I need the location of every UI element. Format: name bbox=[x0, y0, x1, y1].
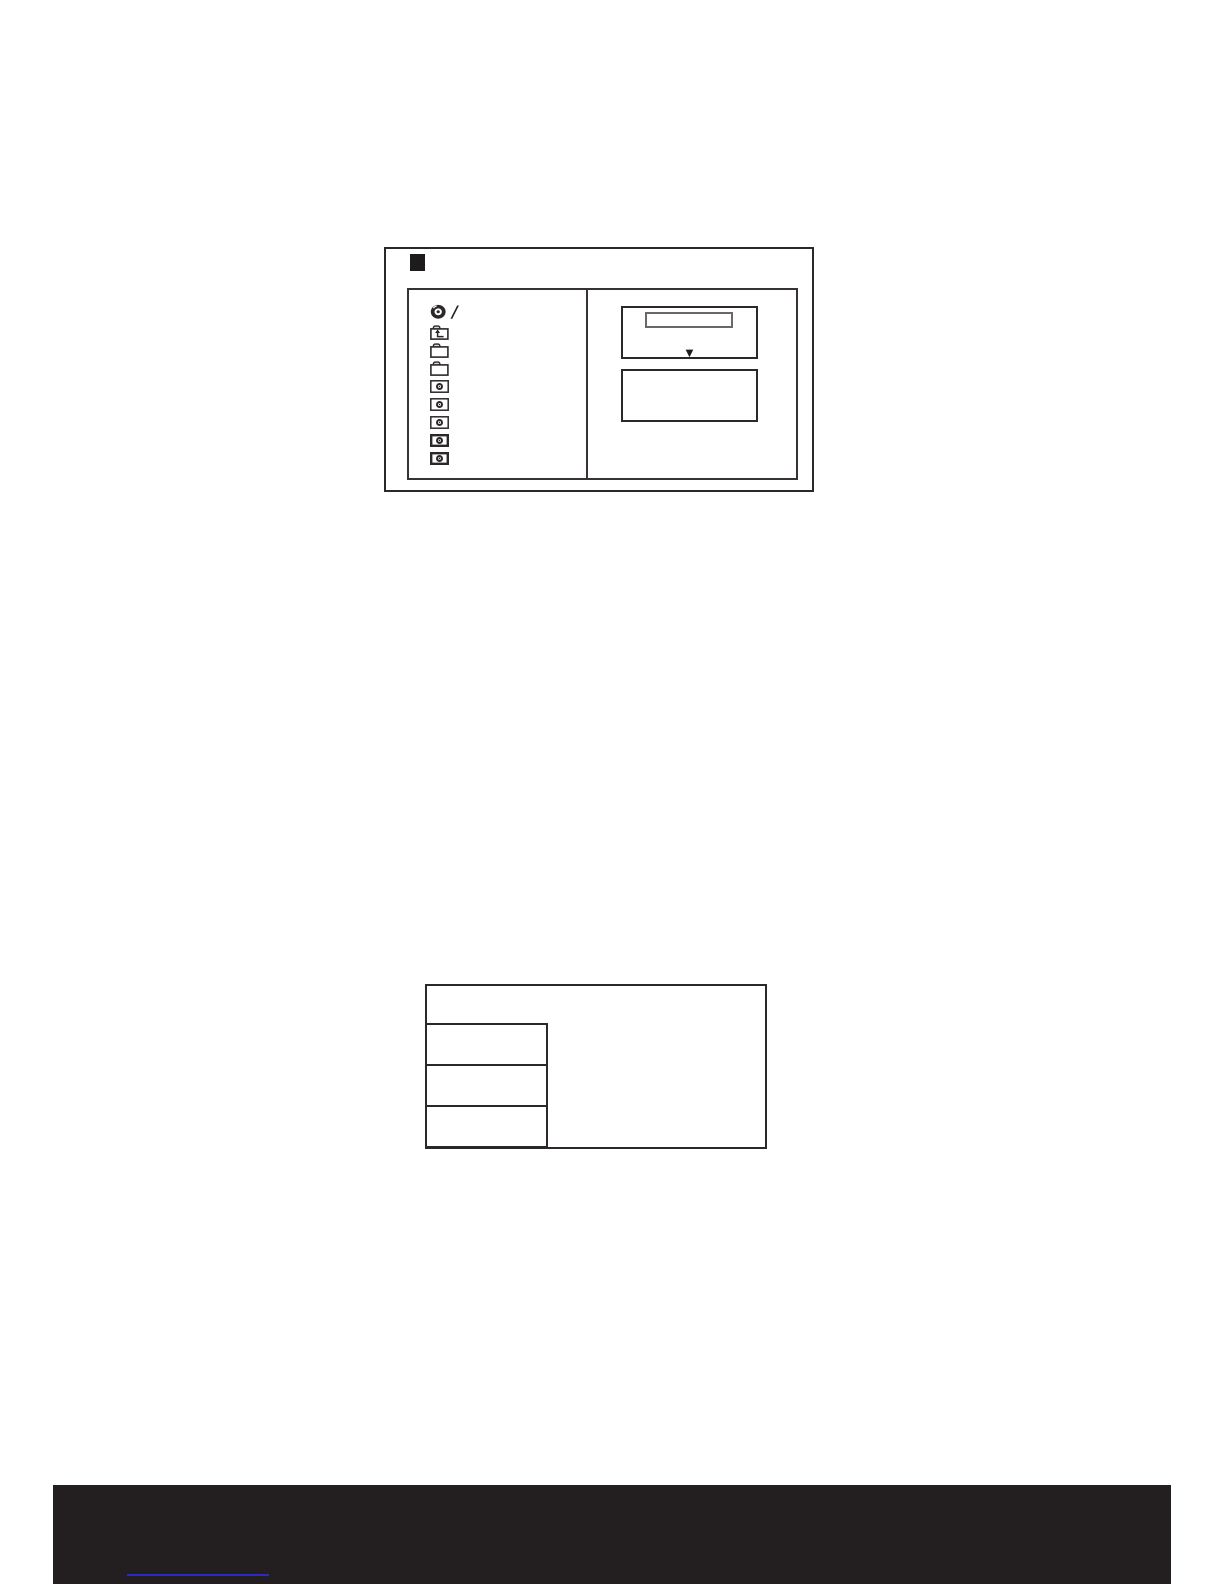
disc-icon bbox=[430, 304, 447, 320]
camera-file-icon bbox=[430, 452, 449, 465]
footer-link[interactable] bbox=[127, 1562, 269, 1576]
folder-icon bbox=[430, 361, 449, 376]
folder-icon bbox=[430, 343, 449, 358]
file-row bbox=[430, 325, 586, 339]
file-list: / bbox=[430, 303, 586, 465]
file-row bbox=[430, 415, 586, 429]
preview-inner-field bbox=[645, 312, 733, 328]
preview-pane: ▼ bbox=[588, 290, 796, 478]
file-row bbox=[430, 379, 586, 393]
preview-box-bottom bbox=[621, 369, 758, 422]
camera-file-icon bbox=[430, 398, 449, 411]
camera-file-icon bbox=[430, 434, 449, 447]
footer-bar bbox=[53, 1485, 1171, 1584]
option-box bbox=[425, 1064, 548, 1107]
file-row-label: / bbox=[452, 304, 458, 320]
file-row bbox=[430, 433, 586, 447]
camera-file-icon bbox=[430, 380, 449, 393]
option-box bbox=[425, 1023, 548, 1066]
file-list-pane: / bbox=[409, 290, 588, 478]
file-row bbox=[430, 451, 586, 465]
file-row: / bbox=[430, 303, 586, 320]
dropdown-arrow-icon: ▼ bbox=[686, 349, 694, 359]
file-row bbox=[430, 343, 586, 357]
file-browser-dialog: / ▼ bbox=[407, 288, 798, 480]
page: / ▼ bbox=[0, 0, 1224, 1584]
preview-box-top: ▼ bbox=[621, 306, 758, 359]
option-box-column bbox=[425, 1023, 548, 1148]
folder-up-icon bbox=[430, 325, 449, 340]
file-row bbox=[430, 397, 586, 411]
figure-file-browser: / ▼ bbox=[384, 247, 814, 492]
camera-file-icon bbox=[430, 416, 449, 429]
option-box bbox=[425, 1105, 548, 1148]
figure-option-panel bbox=[425, 984, 767, 1149]
step-marker bbox=[410, 254, 425, 271]
file-row bbox=[430, 361, 586, 375]
